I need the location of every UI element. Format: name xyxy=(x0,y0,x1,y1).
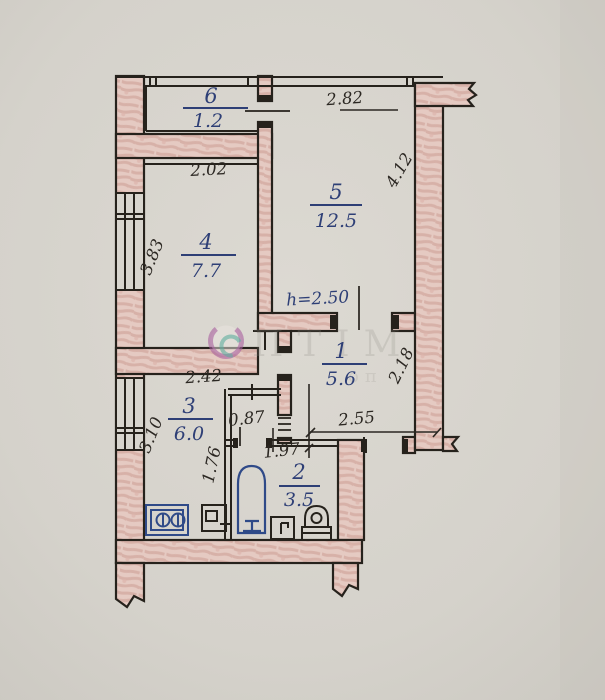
room5-area-label: 12.5 xyxy=(315,210,357,232)
door-exit-tick-a xyxy=(361,439,367,452)
window-room4 xyxy=(116,193,144,290)
dim-room3-width: 2.42 xyxy=(184,366,223,388)
wall-bottom-exterior xyxy=(116,540,362,563)
wall-bathroom-right xyxy=(338,440,364,540)
dim-room5-width: 2.82 xyxy=(325,88,364,110)
wall-right-exterior xyxy=(415,88,443,450)
wall-below-room6 xyxy=(116,134,272,158)
room3-area-label: 6.0 xyxy=(174,423,204,445)
door-room6-tick-a xyxy=(257,95,272,102)
dim-ceiling-height: h=2.50 xyxy=(286,287,350,310)
floor-plan-drawing: ПТІМ оп 6 1.2 5 12.5 4 7.7 1 5.6 3 6.0 2… xyxy=(0,0,605,700)
dim-passage-width: 0.87 xyxy=(227,407,266,430)
dim-room4-width: 2.02 xyxy=(189,159,228,180)
wall-top-right-break xyxy=(415,83,476,106)
room4-number-label: 4 xyxy=(198,230,212,254)
floor-plan-photo: ПТІМ оп 6 1.2 5 12.5 4 7.7 1 5.6 3 6.0 2… xyxy=(0,0,605,700)
room5-number-label: 5 xyxy=(329,180,342,204)
wall-room6-room5-lower xyxy=(258,122,272,331)
room2-area-label: 3.5 xyxy=(284,489,314,511)
dim-room2-width: 1.97 xyxy=(262,439,301,462)
room4-area-label: 7.7 xyxy=(191,260,222,282)
dim-room1-width: 2.55 xyxy=(336,407,375,429)
paper-edge-shade xyxy=(560,0,605,700)
room6-area-label: 1.2 xyxy=(193,110,223,132)
door-bath-tick-a xyxy=(233,438,238,448)
room1-number-label: 1 xyxy=(334,339,347,363)
room2-number-label: 2 xyxy=(291,460,305,484)
door-exit-tick-b xyxy=(402,439,408,452)
door-room6-tick-b xyxy=(257,121,272,128)
room6-number-label: 6 xyxy=(204,84,217,108)
room3-number-label: 3 xyxy=(182,394,195,418)
room1-area-label: 5.6 xyxy=(326,368,356,390)
watermark-text: ПТІМ xyxy=(252,324,415,365)
door-hall-tick-b xyxy=(278,374,291,381)
